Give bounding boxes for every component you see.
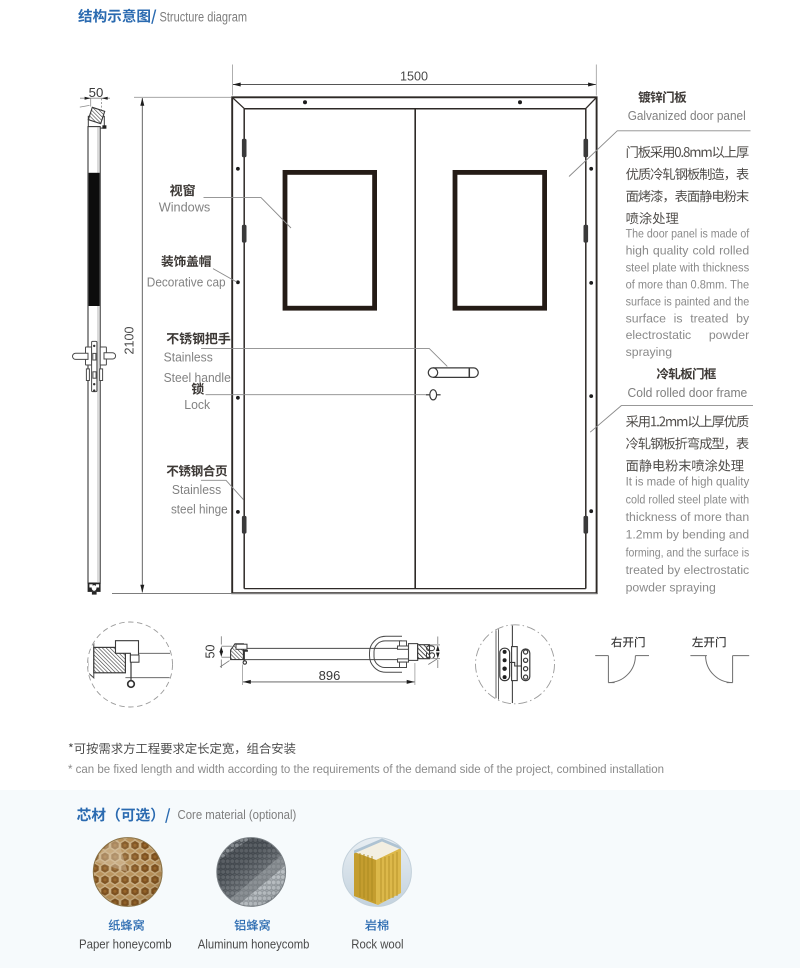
svg-text:spraying: spraying [626, 345, 673, 359]
svg-text:Aluminum honeycomb: Aluminum honeycomb [198, 936, 310, 951]
svg-text:50: 50 [204, 644, 218, 658]
svg-text:2100: 2100 [123, 326, 137, 354]
svg-text:surface is painted and the: surface is painted and the [626, 294, 750, 308]
svg-text:Stainless: Stainless [164, 349, 214, 364]
svg-text:electrostatic powder: electrostatic powder [626, 328, 750, 342]
svg-text:50: 50 [89, 85, 104, 100]
svg-text:1.2mm by bending and: 1.2mm by bending and [626, 528, 750, 542]
svg-text:Windows: Windows [159, 200, 211, 215]
svg-text:50: 50 [424, 645, 438, 659]
svg-text:The door panel is made of: The door panel is made of [626, 227, 750, 241]
svg-text:Paper honeycomb: Paper honeycomb [79, 936, 172, 951]
svg-text:Decorative cap: Decorative cap [147, 275, 226, 290]
svg-text:cold rolled steel plate with: cold rolled steel plate with [626, 492, 750, 506]
svg-text:Stainless: Stainless [172, 482, 222, 497]
svg-text:of more than 0.8mm. The: of more than 0.8mm. The [626, 277, 750, 291]
svg-text:powder spraying: powder spraying [626, 581, 716, 595]
svg-text:thickness of more than: thickness of more than [626, 510, 750, 524]
svg-text:Lock: Lock [184, 397, 210, 412]
svg-text:Rock wool: Rock wool [351, 936, 403, 951]
svg-text:Cold rolled door frame: Cold rolled door frame [628, 385, 748, 400]
svg-text:steel plate with thickness: steel plate with thickness [626, 260, 750, 274]
svg-text:Galvanized door panel: Galvanized door panel [628, 108, 746, 123]
svg-text:treated by electrostatic: treated by electrostatic [626, 563, 750, 577]
svg-text:Structure diagram: Structure diagram [160, 9, 248, 24]
svg-text:Core material (optional): Core material (optional) [178, 807, 297, 822]
svg-text:1500: 1500 [400, 69, 428, 83]
svg-text:forming, and the surface is: forming, and the surface is [626, 545, 750, 559]
svg-text:896: 896 [319, 668, 341, 683]
svg-text:* can be fixed length and widt: * can be fixed length and width accordin… [68, 762, 664, 776]
svg-text:surface is treated by: surface is treated by [626, 311, 750, 325]
svg-text:steel hinge: steel hinge [171, 502, 228, 517]
svg-text:high quality cold rolled: high quality cold rolled [626, 243, 750, 257]
svg-text:Steel handle: Steel handle [164, 370, 231, 385]
svg-text:It is made of high quality: It is made of high quality [626, 475, 750, 489]
